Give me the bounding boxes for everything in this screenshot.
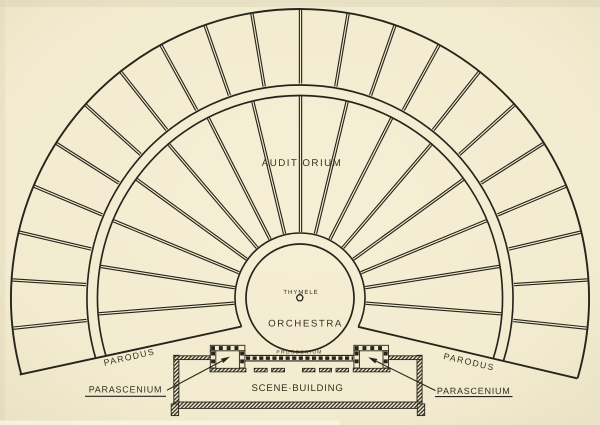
svg-text:PARASCENIUM: PARASCENIUM <box>437 386 511 396</box>
svg-text:AUDIT ORIUM: AUDIT ORIUM <box>262 158 343 169</box>
svg-text:ORCHESTRA: ORCHESTRA <box>268 319 343 330</box>
svg-text:PROSCENIUM: PROSCENIUM <box>276 349 322 355</box>
svg-text:PARASCENIUM: PARASCENIUM <box>89 384 163 394</box>
svg-text:THYMELE: THYMELE <box>283 289 318 296</box>
svg-text:SCENE·BUILDING: SCENE·BUILDING <box>251 383 343 394</box>
